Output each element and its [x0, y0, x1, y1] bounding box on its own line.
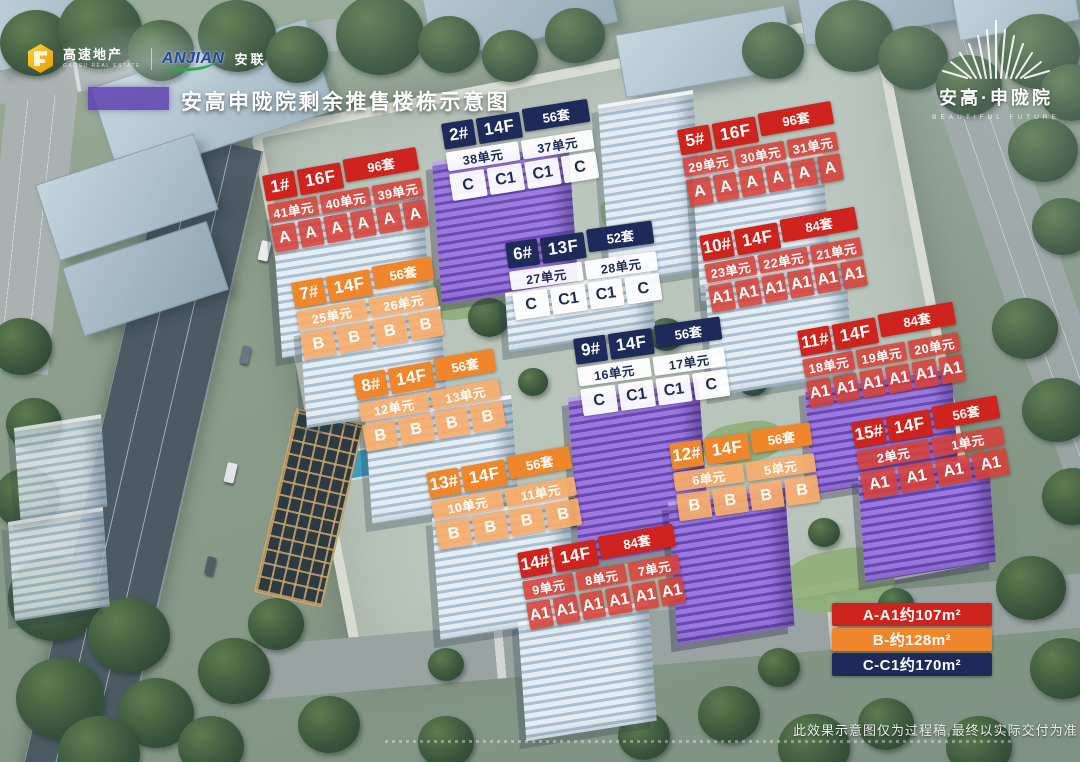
unit-type-cell: B [712, 485, 749, 516]
unit-type-cell: A [375, 204, 403, 235]
project-logo: 安高·申陇院 BEAUTIFUL FUTURE [916, 20, 1076, 121]
tree [468, 298, 510, 337]
unit-type-cell: B [371, 315, 408, 347]
tree [518, 368, 548, 396]
project-logo-sunburst-icon [936, 20, 1056, 80]
legend-item: A-A1约107m² [832, 603, 992, 626]
building-number: 15# [851, 417, 887, 448]
unit-type-cell: C [624, 273, 662, 305]
tree [758, 648, 800, 687]
gaosu-logo-icon [28, 44, 53, 73]
unit-type-cell: B [784, 475, 821, 506]
unit-type-cell: B [398, 413, 435, 445]
site-plan-scene: 高速地产 GAOSU REAL ESTATE ANJIAN 安联 安高申陇院剩余… [0, 0, 1080, 762]
unit-type-cell: A [297, 218, 325, 249]
unit-type-cell: A1 [632, 580, 660, 611]
unit-type-cell: B [676, 490, 713, 521]
building-floors: 14F [704, 433, 751, 465]
unit-type-cell: B [336, 321, 373, 353]
residential-tower [8, 507, 110, 621]
tree [545, 8, 605, 63]
building-number: 8# [353, 369, 389, 400]
unit-type-cell: A1 [885, 363, 913, 394]
building-number: 6# [505, 239, 540, 269]
unit-type-cell: A1 [579, 590, 607, 621]
tree [996, 556, 1066, 620]
developer-logos: 高速地产 GAOSU REAL ESTATE ANJIAN 安联 [28, 44, 267, 73]
tree [1022, 378, 1080, 442]
tree [178, 716, 244, 762]
tree [298, 696, 360, 753]
unit-type-cell: A [271, 222, 299, 253]
unit-type-cell: B [544, 498, 582, 530]
unit-type-cell: A1 [897, 461, 936, 494]
unit-type-cell: B [469, 401, 506, 433]
gaosu-logo-text: 高速地产 GAOSU REAL ESTATE [63, 48, 141, 68]
unit-type-cell: A1 [526, 599, 554, 630]
anjian-logo: ANJIAN [162, 50, 225, 68]
tree [482, 30, 538, 82]
tree [1008, 118, 1078, 182]
building-number: 9# [573, 335, 608, 365]
tree [266, 26, 328, 83]
fine-print-line [385, 740, 1015, 743]
tree [336, 0, 424, 75]
tree [428, 648, 464, 681]
tree [1030, 638, 1080, 699]
unit-type-cell: C1 [655, 374, 693, 406]
developer-subtitle: GAOSU REAL ESTATE [63, 63, 141, 69]
unit-type-cell: B [300, 327, 337, 359]
unit-type-cell: C1 [486, 163, 525, 195]
building-number: 2# [441, 119, 477, 150]
legend-item: C-C1约170m² [832, 653, 992, 676]
unit-type-cell: A1 [761, 273, 789, 304]
unit-type-cell: B [748, 480, 785, 511]
residential-tower [14, 414, 107, 520]
unit-type-cell: A1 [912, 358, 940, 389]
unit-type-cell: A1 [787, 268, 815, 299]
building-floors: 14F [608, 328, 655, 360]
unit-type-cell: C1 [587, 278, 625, 310]
building-floors: 14F [476, 112, 524, 145]
tree [992, 298, 1058, 359]
disclaimer-text: 此效果示意图仅为过程稿,最终以实际交付为准 [793, 720, 1078, 739]
unit-type-cell: A [764, 162, 792, 193]
unit-type-cell: A [349, 208, 377, 239]
unit-type-cell: C [449, 169, 488, 201]
car [258, 240, 272, 262]
unit-type-cell: C [580, 385, 618, 417]
unit-type-cell: C [561, 151, 600, 183]
unit-type-cell: A1 [708, 282, 736, 313]
unit-type-cell: A [686, 176, 714, 207]
unit-type-cell: A1 [605, 585, 633, 616]
project-slogan: BEAUTIFUL FUTURE [932, 114, 1060, 121]
legend-item: B-约128m² [832, 628, 992, 651]
unit-type-cell: A1 [814, 263, 842, 294]
unit-type-cell: A1 [859, 368, 887, 399]
tree [418, 16, 480, 73]
building-number: 1# [262, 170, 298, 201]
unit-type-cell: A [816, 153, 844, 184]
tree [88, 598, 170, 673]
anjian-swoosh-icon [160, 58, 218, 72]
tree [1042, 468, 1080, 525]
unit-type-cell: A [401, 199, 429, 230]
unit-type-cell: B [362, 419, 399, 451]
developer-name: 高速地产 [63, 48, 141, 62]
unit-type-cell: A1 [734, 277, 762, 308]
anjian-cn-name: 安联 [234, 49, 266, 68]
building-floors: 13F [540, 232, 587, 264]
unit-type-cell: B [407, 309, 444, 341]
tree [698, 686, 760, 743]
unit-type-cell: C1 [617, 379, 655, 411]
unit-type-cell: A1 [832, 372, 860, 403]
building-number: 7# [291, 277, 327, 308]
unit-type-cell: A1 [658, 576, 686, 607]
unit-type-cell: B [433, 407, 470, 439]
building-number: 13# [426, 467, 462, 498]
unit-type-cell: C [512, 289, 550, 321]
building-number: 11# [797, 325, 833, 356]
unit-type-cell: C1 [549, 283, 587, 315]
building-number: 12# [669, 440, 704, 470]
tree [742, 22, 804, 79]
unit-type-cell: A [712, 172, 740, 203]
unit-type-legend: A-A1约107m²B-约128m²C-C1约170m² [832, 603, 992, 678]
unit-type-cell: A1 [552, 594, 580, 625]
unit-type-cell: A1 [934, 454, 973, 487]
title-watermark-block [88, 87, 169, 110]
unit-type-cell: B [471, 511, 509, 543]
unit-type-cell: A1 [860, 467, 899, 500]
car [204, 556, 217, 576]
unit-type-cell: C1 [524, 157, 563, 189]
unit-type-cell: A1 [840, 259, 868, 290]
car [224, 462, 238, 484]
unit-type-cell: A [738, 167, 766, 198]
car [239, 345, 252, 365]
building-number: 14# [517, 547, 553, 578]
unit-type-cell: C [692, 369, 730, 401]
tree [418, 716, 474, 762]
unit-type-cell: A1 [806, 377, 834, 408]
unit-type-cell: B [435, 517, 473, 549]
page-title: 安高申陇院剩余推售楼栋示意图 [181, 86, 510, 116]
unit-type-cell: A1 [938, 354, 966, 385]
tree [248, 598, 304, 650]
building-number: 5# [677, 124, 713, 155]
unit-type-cell: A [323, 213, 351, 244]
project-name: 安高·申陇院 [939, 84, 1053, 110]
tree [198, 638, 270, 704]
building-number: 10# [699, 230, 735, 261]
logo-divider [151, 48, 152, 70]
unit-type-cell: A [790, 158, 818, 189]
unit-type-cell: A1 [971, 448, 1010, 481]
unit-type-cell: B [508, 504, 546, 536]
